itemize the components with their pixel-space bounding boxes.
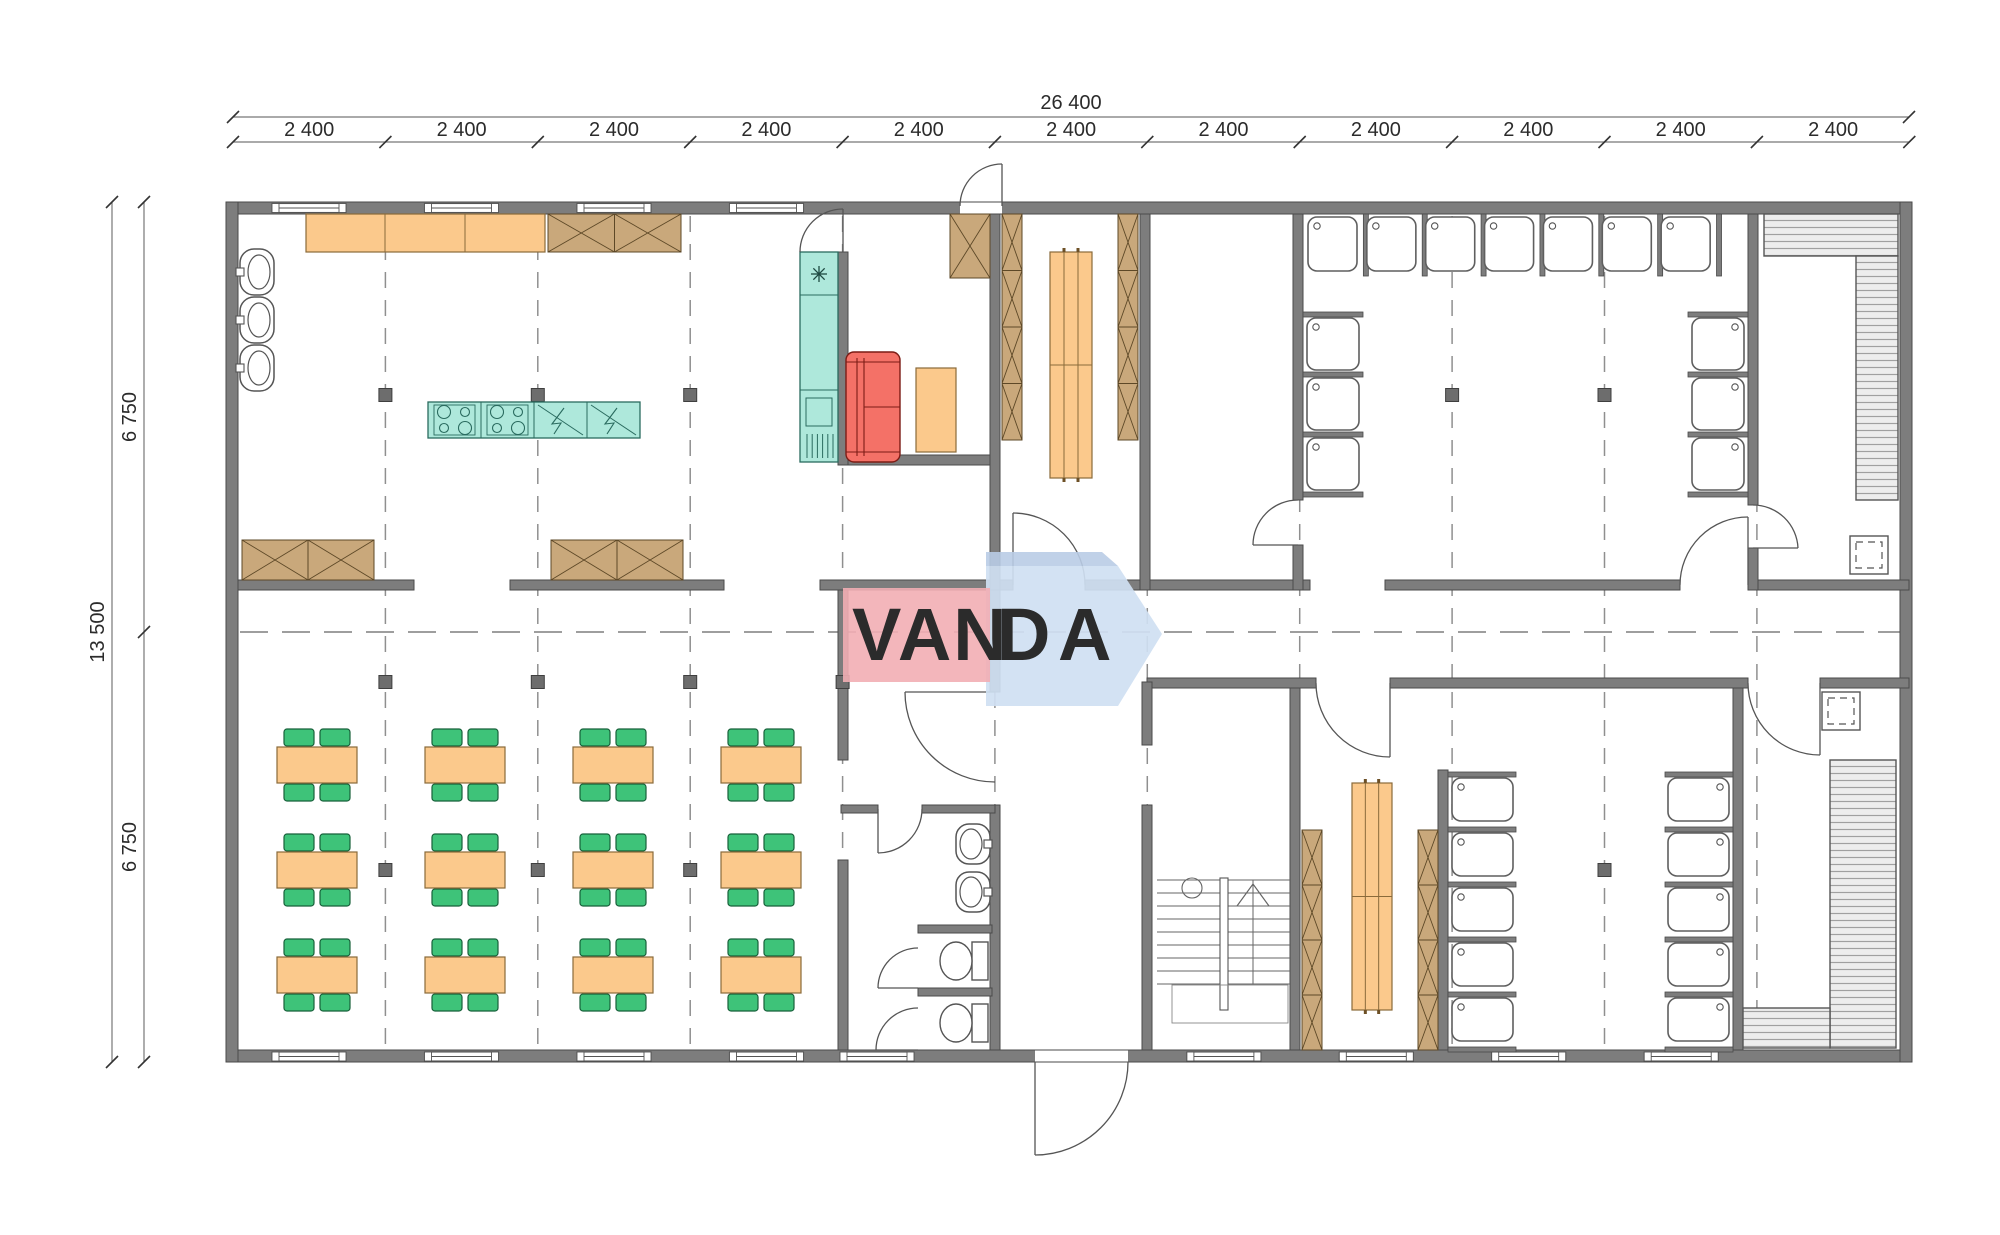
kitchen-sink-tap [236, 268, 244, 276]
chair [284, 834, 314, 851]
shower-drain [1717, 839, 1723, 845]
dining-table-unit [573, 939, 653, 1011]
chair [728, 834, 758, 851]
chair [284, 994, 314, 1011]
door-swing [878, 948, 918, 988]
door-opening [960, 203, 1002, 214]
chair [320, 939, 350, 956]
dim-bay-label: 2 400 [589, 119, 639, 141]
chair [580, 994, 610, 1011]
toilet [940, 1004, 988, 1042]
kitchen-counter [306, 214, 545, 252]
door-swing [878, 809, 922, 853]
kitchen-sink-basin [248, 303, 270, 337]
window-frame [272, 204, 279, 213]
chair [320, 889, 350, 906]
shower-drain [1458, 839, 1464, 845]
column [684, 389, 697, 402]
dining-table-unit [721, 834, 801, 906]
chair [580, 834, 610, 851]
dining-table [721, 747, 801, 783]
stall-partition [1665, 882, 1733, 887]
sauna-bench [1743, 1008, 1830, 1048]
wall [1140, 214, 1150, 590]
chair [320, 729, 350, 746]
stall-partition [1448, 772, 1516, 777]
chair [764, 729, 794, 746]
wall [922, 805, 995, 813]
wall [1147, 678, 1316, 688]
dim-bay-label: 2 400 [894, 119, 944, 141]
shower-drain [1732, 444, 1738, 450]
stall-partition [1665, 1047, 1733, 1052]
dim-half-height-top: 6 750 [119, 392, 141, 442]
chair [728, 784, 758, 801]
shower-drain [1313, 444, 1319, 450]
shelf-tick [1377, 1010, 1380, 1014]
kitchen-sink-tap [236, 316, 244, 324]
chair [432, 729, 462, 746]
dim-bay-label: 2 400 [1503, 119, 1553, 141]
shower-drain [1732, 384, 1738, 390]
shower-drain [1458, 949, 1464, 955]
chair [764, 889, 794, 906]
chair [432, 939, 462, 956]
stall-partition [1448, 937, 1516, 942]
dining-table-unit [277, 939, 357, 1011]
stall-partition [1665, 772, 1733, 777]
window-frame [644, 204, 651, 213]
stall-partition [1688, 432, 1748, 437]
wall [1385, 580, 1680, 590]
wall [1390, 678, 1748, 688]
dining-table-unit [573, 834, 653, 906]
floor-plan-page: 26 400 13 500 6 750 6 750 2 4002 4002 40… [0, 0, 2000, 1235]
chair [320, 994, 350, 1011]
window-frame [577, 1052, 584, 1061]
shower-drain [1313, 324, 1319, 330]
wall [1293, 214, 1303, 500]
stall-partition [1448, 1047, 1516, 1052]
shelf-tick [1077, 248, 1080, 252]
dim-bay-label: 2 400 [284, 119, 334, 141]
shower-drain [1732, 324, 1738, 330]
wall [1748, 580, 1909, 590]
shower-drain [1314, 223, 1320, 229]
shelf-tick [1063, 478, 1066, 482]
stall-partition [1303, 492, 1363, 497]
dining-table [277, 747, 357, 783]
shower-drain [1717, 949, 1723, 955]
stair-rail [1220, 878, 1228, 1010]
dining-table-unit [721, 939, 801, 1011]
sauna-heater [1822, 692, 1860, 730]
column [531, 864, 544, 877]
watermark-text-a: A [1058, 593, 1113, 676]
chair [468, 784, 498, 801]
window-frame [644, 1052, 651, 1061]
stall-partition [1448, 827, 1516, 832]
stall-partition [1665, 937, 1733, 942]
dining-table-unit [277, 729, 357, 801]
window-frame [1406, 1052, 1413, 1061]
chair [468, 889, 498, 906]
stall-partition [1665, 827, 1733, 832]
door-opening [1035, 1051, 1128, 1062]
watermark-text-d: D [997, 593, 1052, 676]
chair [728, 939, 758, 956]
sauna-rooms [1743, 214, 1898, 1048]
chair [728, 729, 758, 746]
chair [432, 994, 462, 1011]
chair [764, 994, 794, 1011]
dim-bay-label: 2 400 [1351, 119, 1401, 141]
chair [616, 939, 646, 956]
chair [764, 834, 794, 851]
wall [918, 925, 992, 933]
stall-partition [1717, 214, 1722, 276]
column [1446, 389, 1459, 402]
shower-drain [1717, 894, 1723, 900]
column [379, 676, 392, 689]
window-frame [425, 1052, 432, 1061]
dim-bay-label: 2 400 [1808, 119, 1858, 141]
door-swing [800, 209, 843, 252]
window-frame [1254, 1052, 1261, 1061]
shower-drain [1313, 384, 1319, 390]
shower-drain [1717, 784, 1723, 790]
wall [1748, 214, 1758, 505]
shelf-tick [1077, 478, 1080, 482]
door-swing [1680, 517, 1748, 585]
column [531, 676, 544, 689]
dim-total-height: 13 500 [87, 601, 109, 662]
window-frame [1492, 1052, 1499, 1061]
dining-table [425, 747, 505, 783]
wall [1900, 202, 1912, 1062]
chair [468, 939, 498, 956]
door-swing [905, 692, 995, 782]
door-swing [876, 1008, 918, 1050]
chair [616, 889, 646, 906]
wall [238, 580, 414, 590]
column [1598, 864, 1611, 877]
stair-start-mark [1182, 878, 1202, 898]
window-frame [1644, 1052, 1651, 1061]
sauna-bench [1764, 214, 1898, 256]
shower-drain [1458, 894, 1464, 900]
dim-bay-label: 2 400 [1198, 119, 1248, 141]
sauna-heater [1850, 536, 1888, 574]
window-frame [1339, 1052, 1346, 1061]
chair [468, 994, 498, 1011]
stall-partition [1665, 992, 1733, 997]
kitchen-furniture [236, 214, 990, 580]
chair [616, 784, 646, 801]
window-frame [1187, 1052, 1194, 1061]
chair [320, 834, 350, 851]
window-frame [907, 1052, 914, 1061]
dining-table [277, 957, 357, 993]
watermark-band [986, 552, 1118, 566]
chair [468, 729, 498, 746]
window-frame [1559, 1052, 1566, 1061]
dining-table-unit [425, 729, 505, 801]
window-frame [272, 1052, 279, 1061]
dining-table [721, 852, 801, 888]
shelf-tick [1063, 248, 1066, 252]
kitchen-sink-basin [248, 351, 270, 385]
door-swing [1753, 505, 1798, 548]
wall [1142, 682, 1152, 745]
stall-partition [1688, 312, 1748, 317]
sauna-bench [1856, 256, 1898, 500]
dim-bay-label: 2 400 [1046, 119, 1096, 141]
dim-bay-label: 2 400 [1656, 119, 1706, 141]
wall [1290, 688, 1300, 1050]
chair [580, 889, 610, 906]
dining-table-unit [425, 834, 505, 906]
window-frame [797, 1052, 804, 1061]
wash-basin [956, 872, 992, 912]
shower-drain [1373, 223, 1379, 229]
wall [918, 988, 992, 996]
dining-table-unit [573, 729, 653, 801]
shower-drain [1717, 1004, 1723, 1010]
window-frame [425, 204, 432, 213]
stall-partition [1688, 372, 1748, 377]
kitchen-sink-tap [236, 364, 244, 372]
chair [616, 994, 646, 1011]
wall [510, 580, 724, 590]
wall [1820, 678, 1909, 688]
door-swing [960, 164, 1002, 206]
chair [580, 939, 610, 956]
stall-partition [1448, 992, 1516, 997]
chair [616, 834, 646, 851]
shower-drain [1458, 784, 1464, 790]
column [1598, 389, 1611, 402]
chair [616, 729, 646, 746]
column [684, 676, 697, 689]
window-frame [577, 204, 584, 213]
dim-bay-label: 2 400 [741, 119, 791, 141]
chair [764, 939, 794, 956]
floor-plan-drawing: 26 400 13 500 6 750 6 750 2 4002 4002 40… [0, 0, 2000, 1235]
chair [284, 729, 314, 746]
chair [284, 889, 314, 906]
dining-table [573, 957, 653, 993]
chair [284, 939, 314, 956]
wall [1438, 770, 1448, 1050]
shower-drain [1490, 223, 1496, 229]
window-frame [1711, 1052, 1718, 1061]
dining-table [721, 957, 801, 993]
dining-table [573, 747, 653, 783]
fridge-unit [800, 252, 838, 462]
stall-partition [1303, 372, 1363, 377]
shelf-tick [1364, 1010, 1367, 1014]
shower-drain [1458, 1004, 1464, 1010]
column [684, 864, 697, 877]
stair-landing [1172, 985, 1288, 1023]
kitchen-sink-basin [248, 255, 270, 289]
chair [764, 784, 794, 801]
column [531, 389, 544, 402]
wash-basin [956, 824, 992, 864]
shower-drain [1432, 223, 1438, 229]
dining-table [425, 957, 505, 993]
wall [1733, 688, 1743, 1050]
chair [580, 784, 610, 801]
wall [1748, 548, 1758, 590]
window-frame [797, 204, 804, 213]
dim-half-height-bottom: 6 750 [119, 822, 141, 872]
column [379, 864, 392, 877]
chair [432, 834, 462, 851]
shelf-tick [1364, 779, 1367, 783]
dining-table [277, 852, 357, 888]
dining-table-unit [425, 939, 505, 1011]
stall-partition [1448, 882, 1516, 887]
chair [580, 729, 610, 746]
door-swing [1316, 683, 1390, 757]
chair [468, 834, 498, 851]
staircase [1157, 878, 1290, 1023]
sauna-bench [1830, 760, 1896, 1048]
watermark-text-van: VAN [852, 593, 1009, 676]
shower-drain [1549, 223, 1555, 229]
door-swing [1253, 500, 1298, 545]
shower-drain [1667, 223, 1673, 229]
door-swing [1748, 683, 1820, 755]
stall-partition [1688, 492, 1748, 497]
window-frame [492, 204, 499, 213]
dim-bay-label: 2 400 [437, 119, 487, 141]
wall [226, 202, 238, 1062]
chair [432, 889, 462, 906]
dim-total-width: 26 400 [1040, 92, 1101, 114]
chair [728, 994, 758, 1011]
window-frame [840, 1052, 847, 1061]
column [379, 389, 392, 402]
chair [432, 784, 462, 801]
wall [1293, 545, 1303, 590]
wall [838, 860, 848, 1050]
window-frame [730, 1052, 737, 1061]
wall [990, 214, 1000, 590]
window-frame [339, 1052, 346, 1061]
stall-partition [1303, 312, 1363, 317]
wall [841, 805, 878, 813]
chair [728, 889, 758, 906]
office-table [916, 368, 956, 452]
dining-table [573, 852, 653, 888]
wall [1142, 805, 1152, 1050]
door-swing [1035, 1062, 1128, 1155]
dining-table-unit [277, 834, 357, 906]
dining-table-unit [721, 729, 801, 801]
stall-partition [1303, 432, 1363, 437]
window-frame [339, 204, 346, 213]
dining-table [425, 852, 505, 888]
shelf-tick [1377, 779, 1380, 783]
chair [320, 784, 350, 801]
window-frame [730, 204, 737, 213]
window-frame [492, 1052, 499, 1061]
toilet [940, 942, 988, 980]
shower-drain [1608, 223, 1614, 229]
watermark: VAN D A [843, 552, 1162, 706]
chair [284, 784, 314, 801]
